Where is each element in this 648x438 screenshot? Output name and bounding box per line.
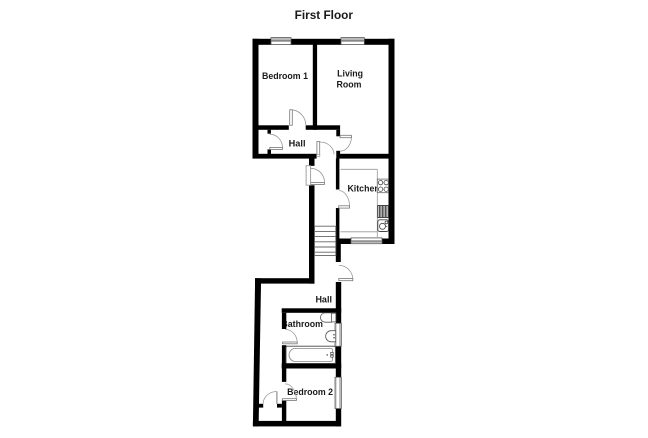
svg-text:Bedroom 2: Bedroom 2 (287, 387, 333, 397)
svg-text:Living: Living (337, 68, 363, 78)
svg-text:Bedroom 1: Bedroom 1 (262, 71, 308, 81)
svg-text:Hall: Hall (315, 295, 332, 305)
svg-text:Kitchen: Kitchen (347, 184, 379, 194)
svg-text:Bathroom: Bathroom (281, 319, 323, 329)
svg-text:First Floor: First Floor (295, 8, 354, 22)
svg-text:Room: Room (337, 80, 362, 90)
svg-text:Hall: Hall (289, 139, 306, 149)
